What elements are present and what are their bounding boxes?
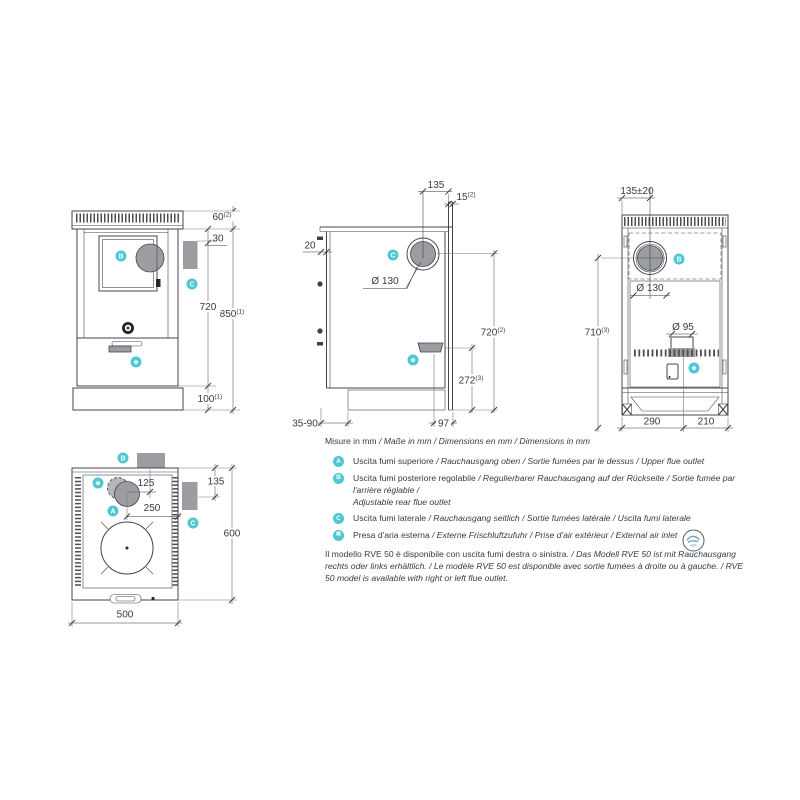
- front-flue-circle: [136, 244, 164, 272]
- svg-text:500: 500: [117, 610, 134, 621]
- svg-text:35-90: 35-90: [292, 419, 318, 430]
- badge-b: B: [333, 473, 344, 484]
- top-rear-flue-box: [137, 453, 165, 468]
- svg-text:✱: ✱: [410, 357, 416, 365]
- svg-text:✱: ✱: [133, 359, 139, 367]
- svg-text:125: 125: [138, 478, 155, 489]
- availability-note: Il modello RVE 50 è disponibile con usci…: [325, 548, 749, 584]
- svg-text:Ø 130: Ø 130: [371, 276, 399, 287]
- legend: Misure in mm / Maße in mm / Dimensions e…: [325, 435, 749, 592]
- svg-text:AIR: AIR: [690, 542, 697, 547]
- top-badge-c: C: [188, 518, 199, 529]
- side-air-inlet: [418, 343, 443, 352]
- svg-text:B: B: [120, 456, 125, 463]
- side-dim-272: 272(3): [444, 344, 487, 413]
- top-badge-air-inlet: ✱: [93, 478, 104, 489]
- back-air-collar: [671, 337, 693, 349]
- units-note: Misure in mm / Maße in mm / Dimensions e…: [325, 435, 749, 447]
- side-dim-dia130: Ø 130: [363, 267, 417, 289]
- back-badge-air-inlet: ✱: [689, 363, 700, 374]
- front-badge-c: C: [187, 279, 198, 290]
- svg-text:250: 250: [144, 503, 161, 514]
- side-badge-air-inlet: ✱: [408, 355, 419, 366]
- top-badge-b: B: [118, 453, 129, 464]
- side-dim-3590: 35-90: [291, 408, 353, 430]
- svg-text:290: 290: [644, 417, 661, 428]
- svg-text:Ø 130: Ø 130: [636, 283, 664, 294]
- svg-text:135±20: 135±20: [620, 186, 654, 197]
- svg-text:B: B: [676, 257, 681, 264]
- svg-text:20: 20: [304, 241, 316, 252]
- side-badge-c: C: [388, 250, 399, 261]
- front-cooktop-rail: [72, 211, 183, 229]
- svg-text:210: 210: [698, 417, 715, 428]
- top-badge-a: A: [108, 506, 119, 517]
- svg-text:Ø 95: Ø 95: [672, 322, 694, 333]
- legend-item-a: A Uscita fumi superiore / Rauchausgang o…: [325, 455, 749, 467]
- technical-drawing-page: B C ✱ 60(2) 850(1): [0, 0, 800, 800]
- back-air-inlet: [668, 348, 695, 357]
- svg-text:C: C: [390, 253, 395, 260]
- side-dim-20: 20: [303, 241, 332, 256]
- svg-text:B: B: [118, 254, 123, 261]
- back-body: [622, 215, 728, 415]
- svg-text:A: A: [110, 509, 115, 516]
- badge-air-inlet: ✱: [333, 530, 344, 541]
- external-air-badge-icon: AIR: [682, 529, 705, 552]
- front-badge-b: B: [116, 251, 127, 262]
- svg-text:30: 30: [212, 234, 224, 245]
- top-hotplate: [101, 522, 153, 574]
- svg-text:97: 97: [438, 419, 450, 430]
- svg-text:15(2): 15(2): [456, 192, 475, 204]
- svg-text:✱: ✱: [691, 365, 697, 373]
- front-door-latch: [156, 279, 161, 287]
- svg-text:720: 720: [200, 302, 217, 313]
- front-view: B C ✱ 60(2) 850(1): [72, 206, 248, 414]
- front-side-flue-box: [183, 241, 198, 269]
- legend-item-c: C Uscita fumi laterale / Rauchausgang se…: [325, 512, 749, 524]
- top-view: B ✱ A C 125: [68, 453, 244, 628]
- back-badge-b: B: [674, 254, 685, 265]
- back-view: B ✱ 135±20 Ø 130 Ø 95: [584, 186, 733, 432]
- svg-text:C: C: [190, 521, 195, 528]
- top-front-handle: [110, 595, 141, 604]
- legend-item-b: B Uscita fumi posteriore regolabile / Re…: [325, 472, 749, 508]
- svg-text:135: 135: [208, 477, 225, 488]
- svg-text:C: C: [189, 282, 194, 289]
- front-knob: [122, 322, 134, 334]
- badge-c: C: [333, 513, 344, 524]
- front-view-drawing: B C ✱ 60(2) 850(1): [0, 0, 800, 800]
- top-side-flue-box: [182, 482, 198, 510]
- legend-item-air-inlet: ✱ Presa d'aria esterna / Externe Frischl…: [325, 529, 749, 541]
- top-dim-500: 500: [68, 602, 182, 627]
- side-dim-720: 720(2): [437, 250, 509, 413]
- svg-text:135: 135: [428, 180, 445, 191]
- front-badge-air-inlet: ✱: [131, 357, 142, 368]
- badge-a: A: [333, 456, 344, 467]
- top-dim-135: 135: [198, 464, 226, 501]
- front-plinth: [73, 388, 183, 410]
- side-plinth: [348, 390, 445, 410]
- svg-text:600: 600: [224, 529, 241, 540]
- svg-text:✱: ✱: [95, 480, 101, 488]
- side-view: C ✱ 135 15(2) 20: [291, 180, 509, 430]
